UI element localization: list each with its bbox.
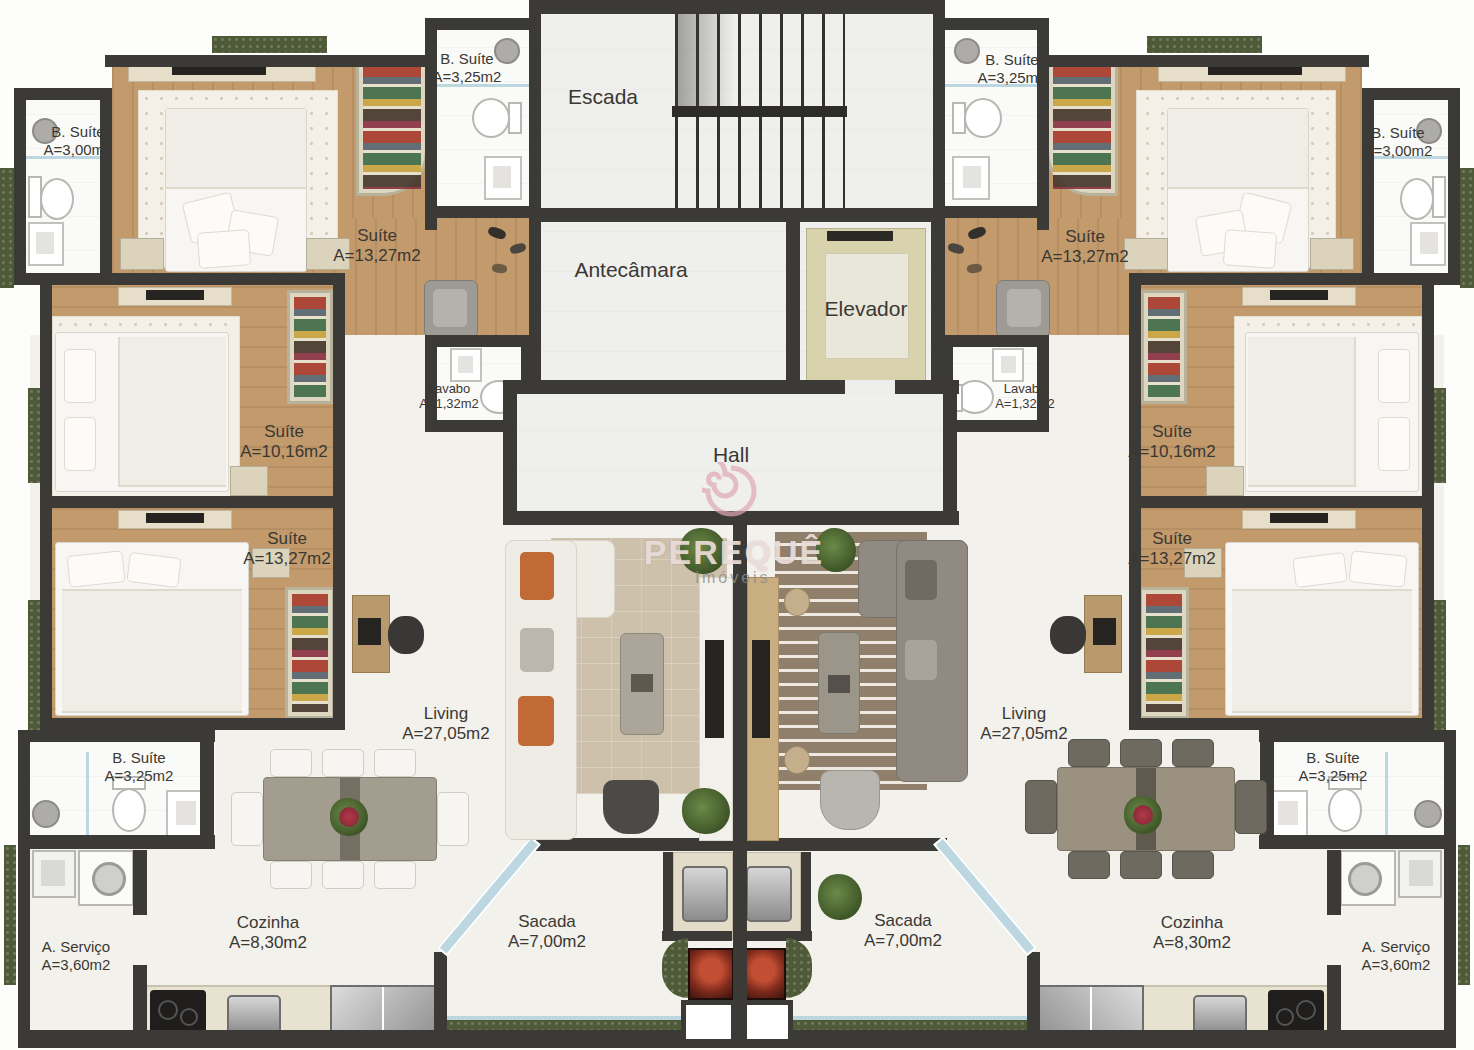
watermark-spiral-logo: [702, 462, 760, 520]
floor-plan: Escada Antecâmara Elevador Hall B. Suíte…: [0, 0, 1474, 1050]
watermark: PEREQUÊ imóveis: [0, 0, 1474, 1050]
watermark-brand: PEREQUÊ: [644, 533, 824, 572]
watermark-tagline: imóveis: [695, 569, 770, 587]
